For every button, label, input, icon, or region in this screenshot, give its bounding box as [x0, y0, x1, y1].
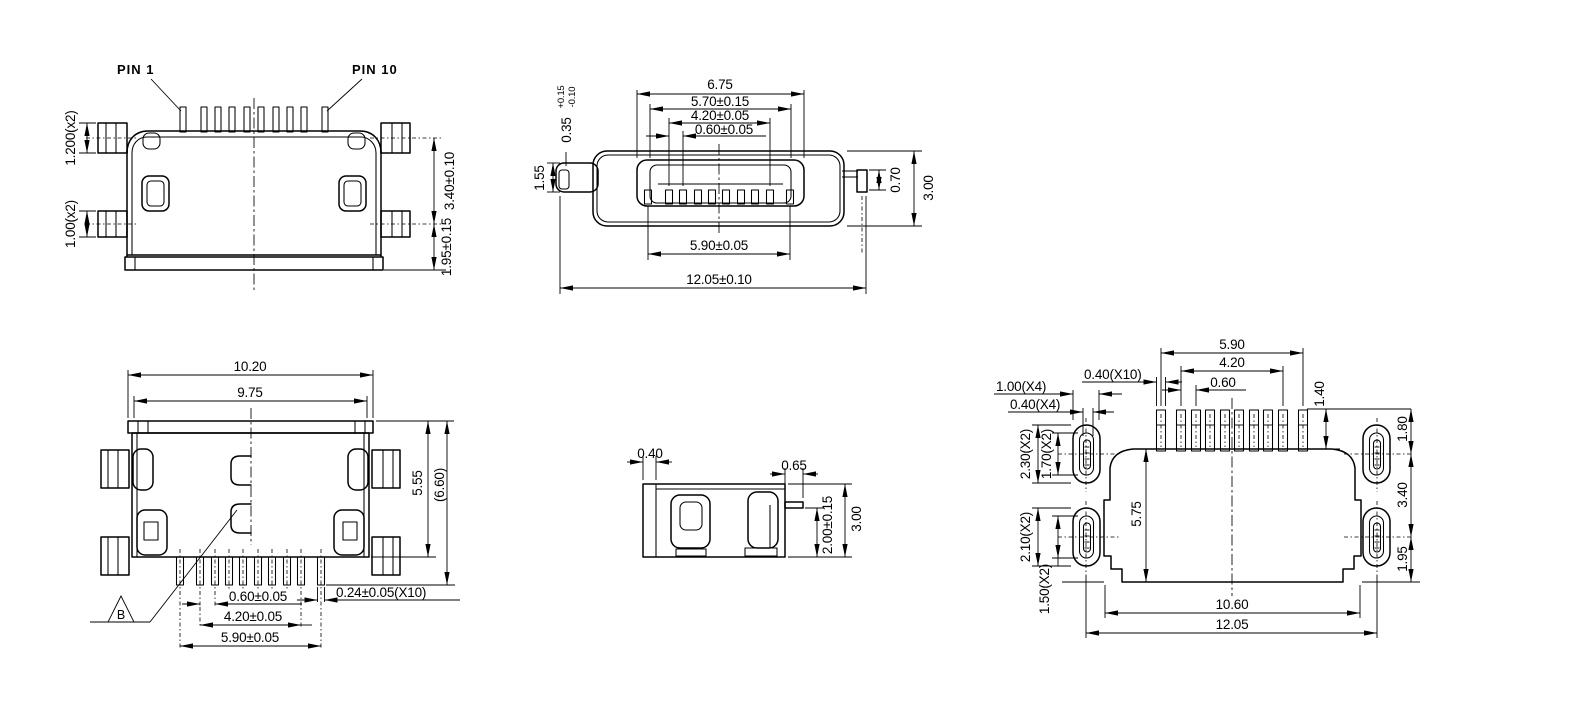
dim-shield-contact-span: 5.90±0.05 — [690, 238, 748, 253]
dim-side-tab-height: 1.55 — [532, 165, 547, 190]
dim-lead-width: 0.24±0.05(X10) — [336, 585, 426, 600]
dim-hole-slot-width: 0.40(X4) — [1010, 397, 1060, 412]
dim-tab-upper: 1.200(x2) — [63, 110, 78, 165]
datum-b-label: B — [117, 608, 125, 622]
mating-face-geometry — [556, 151, 867, 226]
footprint-pads — [1073, 425, 1390, 566]
bottom-view-geometry — [101, 421, 400, 585]
dim-hole-width: 1.00(X4) — [996, 379, 1046, 394]
side-view: 0.40 0.65 2.00±0.15 3.00 — [627, 446, 864, 557]
dim-step-tol-plus: +0.15 — [556, 85, 567, 108]
dim-slot-length-upper: 1.70(X2) — [1039, 429, 1054, 479]
mating-face-view: 6.75 5.70±0.15 4.20±0.05 0.60±0.05 0.35 … — [532, 77, 936, 294]
dim-bottom-overall-width: 10.20 — [234, 359, 267, 374]
dim-footprint-body-width: 10.60 — [1216, 597, 1249, 612]
dim-shell-width: 9.75 — [237, 385, 262, 400]
side-view-dimensions: 0.40 0.65 2.00±0.15 3.00 — [627, 446, 864, 557]
dim-hole-spacing: 3.40 — [1395, 482, 1410, 507]
dim-pad-pitch: 0.60 — [1210, 375, 1235, 390]
footprint-view: 5.90 4.20 0.60 0.40(X10) 1.40 — [994, 337, 1420, 638]
dim-opening-width: 6.75 — [707, 77, 732, 92]
dim-solder-pin-height: 0.70 — [888, 167, 903, 192]
dim-pad-span-outer: 5.90 — [1219, 337, 1244, 352]
dim-tab-lower: 1.00(x2) — [63, 200, 78, 248]
footprint-geometry — [1073, 410, 1390, 582]
dim-edge-to-upper-hole: 1.80 — [1395, 416, 1410, 441]
front-view-dimensions: PIN 1 PIN 10 1.200(x2) 1.00(x2) 3.40±0.1… — [63, 62, 457, 276]
dim-shell-thickness: 0.40 — [637, 446, 662, 461]
dim-lead-length: 0.65 — [781, 458, 806, 473]
dim-lead-pitch: 0.60±0.05 — [229, 589, 287, 604]
drawing-canvas: PIN 1 PIN 10 1.200(x2) 1.00(x2) 3.40±0.1… — [0, 0, 1582, 711]
pin10-label: PIN 10 — [352, 62, 398, 77]
dim-pad-width: 0.40(X10) — [1084, 367, 1142, 382]
dim-body-depth: 5.55 — [410, 470, 425, 495]
footprint-dimensions: 5.90 4.20 0.60 0.40(X10) 1.40 — [994, 337, 1420, 638]
dim-step-tol-minus: -0.10 — [567, 87, 578, 108]
front-view-geometry — [98, 107, 410, 270]
dim-footprint-body-depth: 5.75 — [1129, 501, 1144, 526]
dim-pad-span-inner: 4.20 — [1219, 355, 1244, 370]
dim-base-height: 1.95±0.15 — [439, 218, 454, 276]
pin1-label: PIN 1 — [117, 62, 155, 77]
dim-contact-span: 4.20±0.05 — [691, 108, 749, 123]
front-view: PIN 1 PIN 10 1.200(x2) 1.00(x2) 3.40±0.1… — [63, 62, 457, 292]
dim-overall-depth: (6.60) — [432, 468, 447, 502]
dim-lead-height: 2.00±0.15 — [820, 496, 835, 554]
dim-slot-length-lower: 1.50(X2) — [1037, 564, 1052, 614]
dim-step-value: 0.35 — [559, 117, 574, 142]
dim-lead-span-outer: 5.90±0.05 — [221, 630, 279, 645]
dim-lead-span-inner: 4.20±0.05 — [224, 609, 282, 624]
dim-lower-hole-to-edge: 1.95 — [1395, 546, 1410, 571]
dim-shell-inner-width: 5.70±0.15 — [691, 94, 749, 109]
dim-body-height: 3.00 — [921, 175, 936, 200]
dim-footprint-overall-width: 12.05 — [1216, 617, 1249, 632]
bottom-view-centerlines — [180, 408, 321, 591]
dim-overall-width-front: 12.05±0.10 — [686, 272, 751, 287]
bottom-view: 10.20 9.75 5.55 (6.60) 0.60±0.05 — [90, 359, 460, 649]
dim-contact-pitch: 0.60±0.05 — [695, 122, 753, 137]
dim-overall-height: 3.00 — [849, 506, 864, 531]
side-view-geometry — [643, 484, 803, 557]
dim-hole-length-upper: 2.30(X2) — [1018, 429, 1033, 479]
dim-pad-length: 1.40 — [1312, 381, 1327, 406]
engineering-drawing-sheet: PIN 1 PIN 10 1.200(x2) 1.00(x2) 3.40±0.1… — [0, 0, 1582, 711]
bottom-view-dimensions: 10.20 9.75 5.55 (6.60) 0.60±0.05 — [90, 359, 460, 649]
dim-hole-length-lower: 2.10(X2) — [1018, 512, 1033, 562]
dim-tab-pitch: 3.40±0.10 — [442, 152, 457, 210]
